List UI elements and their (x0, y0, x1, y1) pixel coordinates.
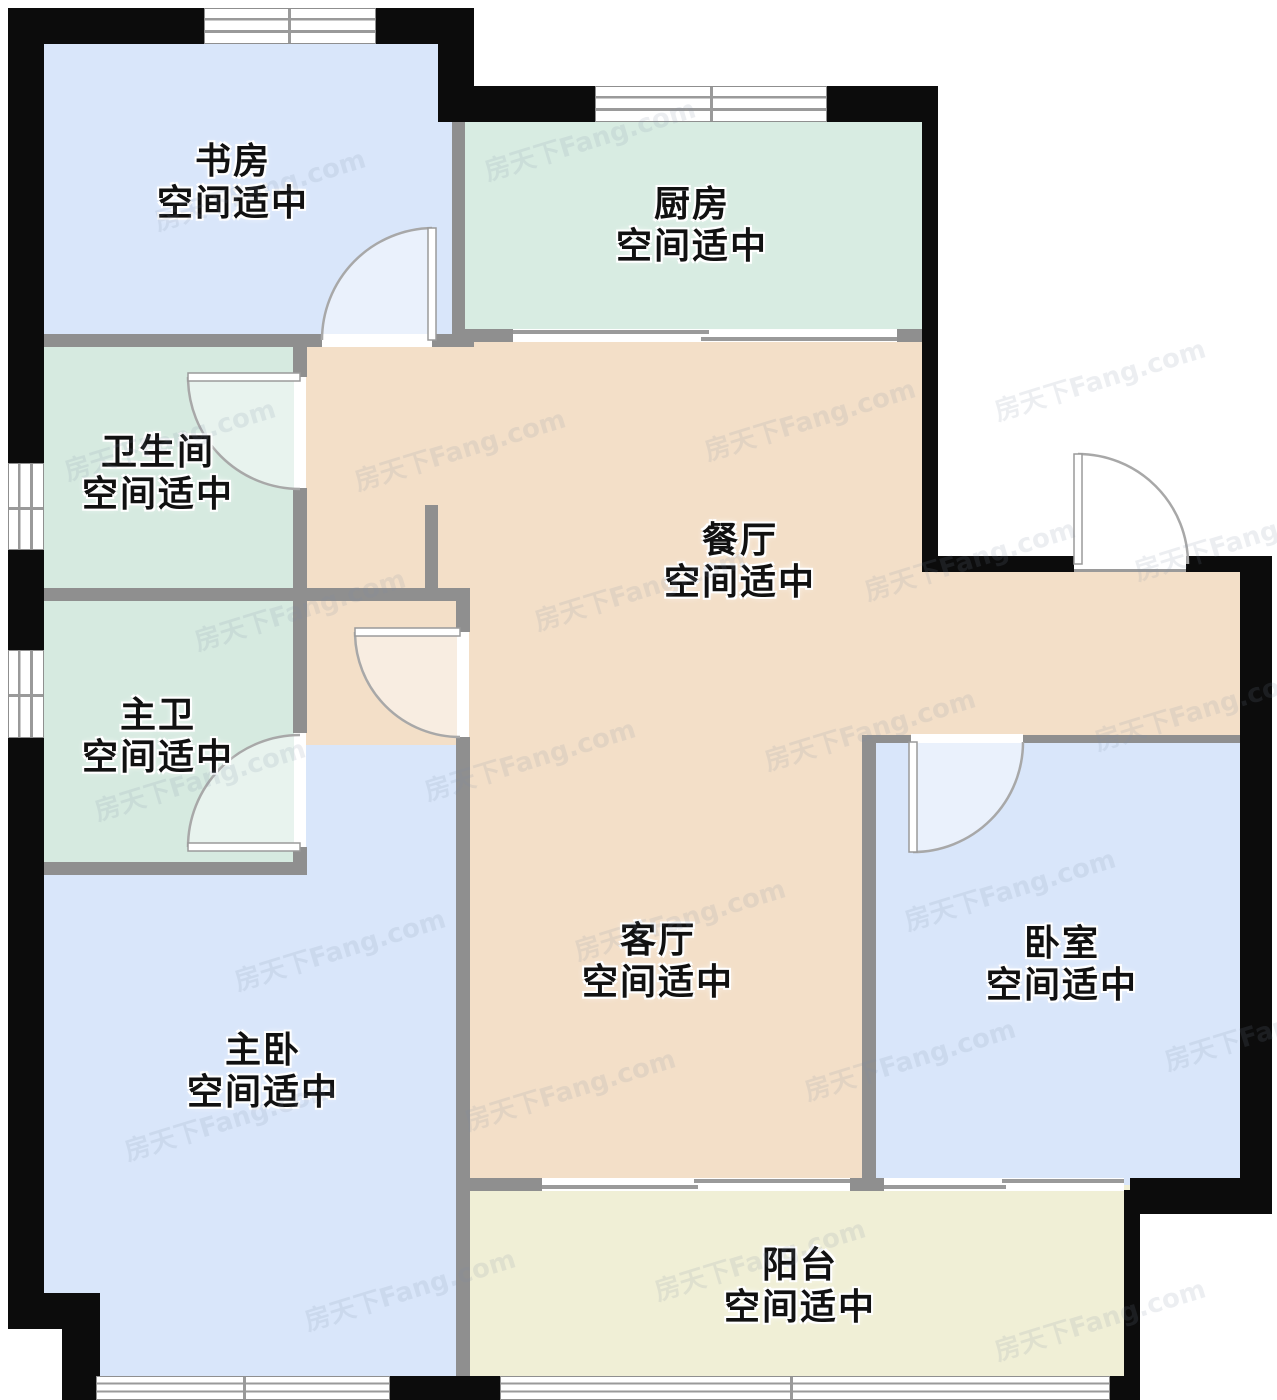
room-condition: 空间适中 (986, 965, 1138, 1007)
room-name: 厨房 (616, 184, 768, 226)
living-balcony-slider-panel (542, 1185, 698, 1189)
window-mullion (243, 1377, 246, 1399)
outer-wall-left-top (8, 8, 44, 463)
room-fill-dining-upper (302, 338, 924, 587)
window-mullion (710, 87, 713, 121)
wall-hall-divider (30, 588, 470, 601)
wall-study-bottom-left (30, 334, 322, 347)
wall-corridor-right-upper (456, 601, 470, 632)
wall-bathroom-right-lower (293, 488, 307, 588)
window-study-top (204, 8, 376, 44)
window-master-bedroom-bottom (96, 1376, 390, 1400)
room-condition: 空间适中 (616, 226, 768, 268)
room-label-bathroom: 卫生间 空间适中 (82, 432, 234, 516)
room-label-master-bathroom: 主卫 空间适中 (82, 695, 234, 779)
door-opening-master-suite (457, 632, 469, 737)
wall-bathroom-right-upper (293, 334, 307, 377)
entry-door-opening (1074, 556, 1186, 572)
wall-kitchen-bottom-right (897, 329, 922, 342)
window-mullion (9, 694, 43, 697)
bedroom-balcony-window-panel (884, 1185, 1006, 1189)
room-label-kitchen: 厨房 空间适中 (616, 184, 768, 268)
room-condition: 空间适中 (664, 562, 816, 604)
exterior-area (1140, 1214, 1277, 1400)
exterior-area (474, 0, 938, 86)
outer-wall-step-vertical (62, 1293, 100, 1400)
room-name: 卫生间 (82, 432, 234, 474)
wall-corridor-right-lower (456, 737, 470, 1382)
window-kitchen-top (595, 86, 827, 122)
room-label-master-bedroom: 主卧 空间适中 (187, 1030, 339, 1114)
window-bathroom-left (8, 463, 44, 550)
window-mullion (9, 507, 43, 510)
room-label-study: 书房 空间适中 (157, 141, 309, 225)
wall-living-bedroom (862, 737, 876, 1190)
door-opening-bathroom (294, 377, 306, 488)
window-mullion (288, 9, 291, 43)
outer-wall-balcony-bottom-right (1110, 1376, 1140, 1400)
room-label-living: 客厅 空间适中 (582, 920, 734, 1004)
kitchen-slider-panel (513, 330, 709, 334)
outer-wall-entry-left (922, 556, 1074, 572)
wall-masterbath-right-upper (293, 601, 307, 733)
wall-dining-stub (425, 505, 438, 601)
wall-bedroom-top-left (862, 735, 911, 743)
room-condition: 空间适中 (724, 1287, 876, 1329)
outer-wall-left-mid (8, 550, 44, 650)
room-label-balcony: 阳台 空间适中 (724, 1245, 876, 1329)
outer-wall-masterbed-bottom (390, 1376, 455, 1400)
outer-wall-kitchen-top-left (455, 86, 595, 122)
exterior-area (938, 0, 1277, 556)
room-label-dining: 餐厅 空间适中 (664, 520, 816, 604)
wall-living-balcony-left (462, 1178, 542, 1191)
wall-living-balcony-post (850, 1178, 884, 1191)
room-condition: 空间适中 (187, 1072, 339, 1114)
window-mullion (790, 1377, 793, 1399)
room-condition: 空间适中 (582, 962, 734, 1004)
room-name: 客厅 (582, 920, 734, 962)
wall-kitchen-bottom-left (455, 329, 513, 342)
outer-wall-kitchen-right (922, 86, 938, 572)
room-condition: 空间适中 (82, 474, 234, 516)
outer-wall-balcony-bottom-left (452, 1376, 500, 1400)
room-name: 卧室 (986, 923, 1138, 965)
room-name: 主卧 (187, 1030, 339, 1072)
living-balcony-slider-panel (694, 1179, 850, 1183)
room-name: 书房 (157, 141, 309, 183)
window-master-bathroom-left (8, 650, 44, 738)
door-opening-master-bathroom (294, 733, 306, 847)
floor-plan: 书房 空间适中 厨房 空间适中 卫生间 空间适中 餐厅 空间适中 主卫 空间适中… (0, 0, 1277, 1400)
outer-wall-balcony-right (1124, 1190, 1140, 1400)
wall-bedroom-top-right (1023, 735, 1240, 743)
door-opening-study (322, 334, 432, 347)
outer-wall-left-bottom (8, 738, 44, 1293)
room-condition: 空间适中 (82, 737, 234, 779)
wall-masterbath-masterbed (30, 862, 307, 875)
room-name: 阳台 (724, 1245, 876, 1287)
window-balcony-bottom (500, 1376, 1110, 1400)
kitchen-slider-panel (701, 337, 897, 341)
room-label-bedroom: 卧室 空间适中 (986, 923, 1138, 1007)
bedroom-balcony-window-panel (1002, 1179, 1124, 1183)
door-opening-bedroom (911, 734, 1023, 743)
outer-wall-bedroom-bottom (1130, 1178, 1272, 1214)
wall-study-kitchen (452, 122, 465, 338)
outer-wall-right (1240, 556, 1272, 1214)
room-name: 主卫 (82, 695, 234, 737)
room-condition: 空间适中 (157, 183, 309, 225)
room-name: 餐厅 (664, 520, 816, 562)
